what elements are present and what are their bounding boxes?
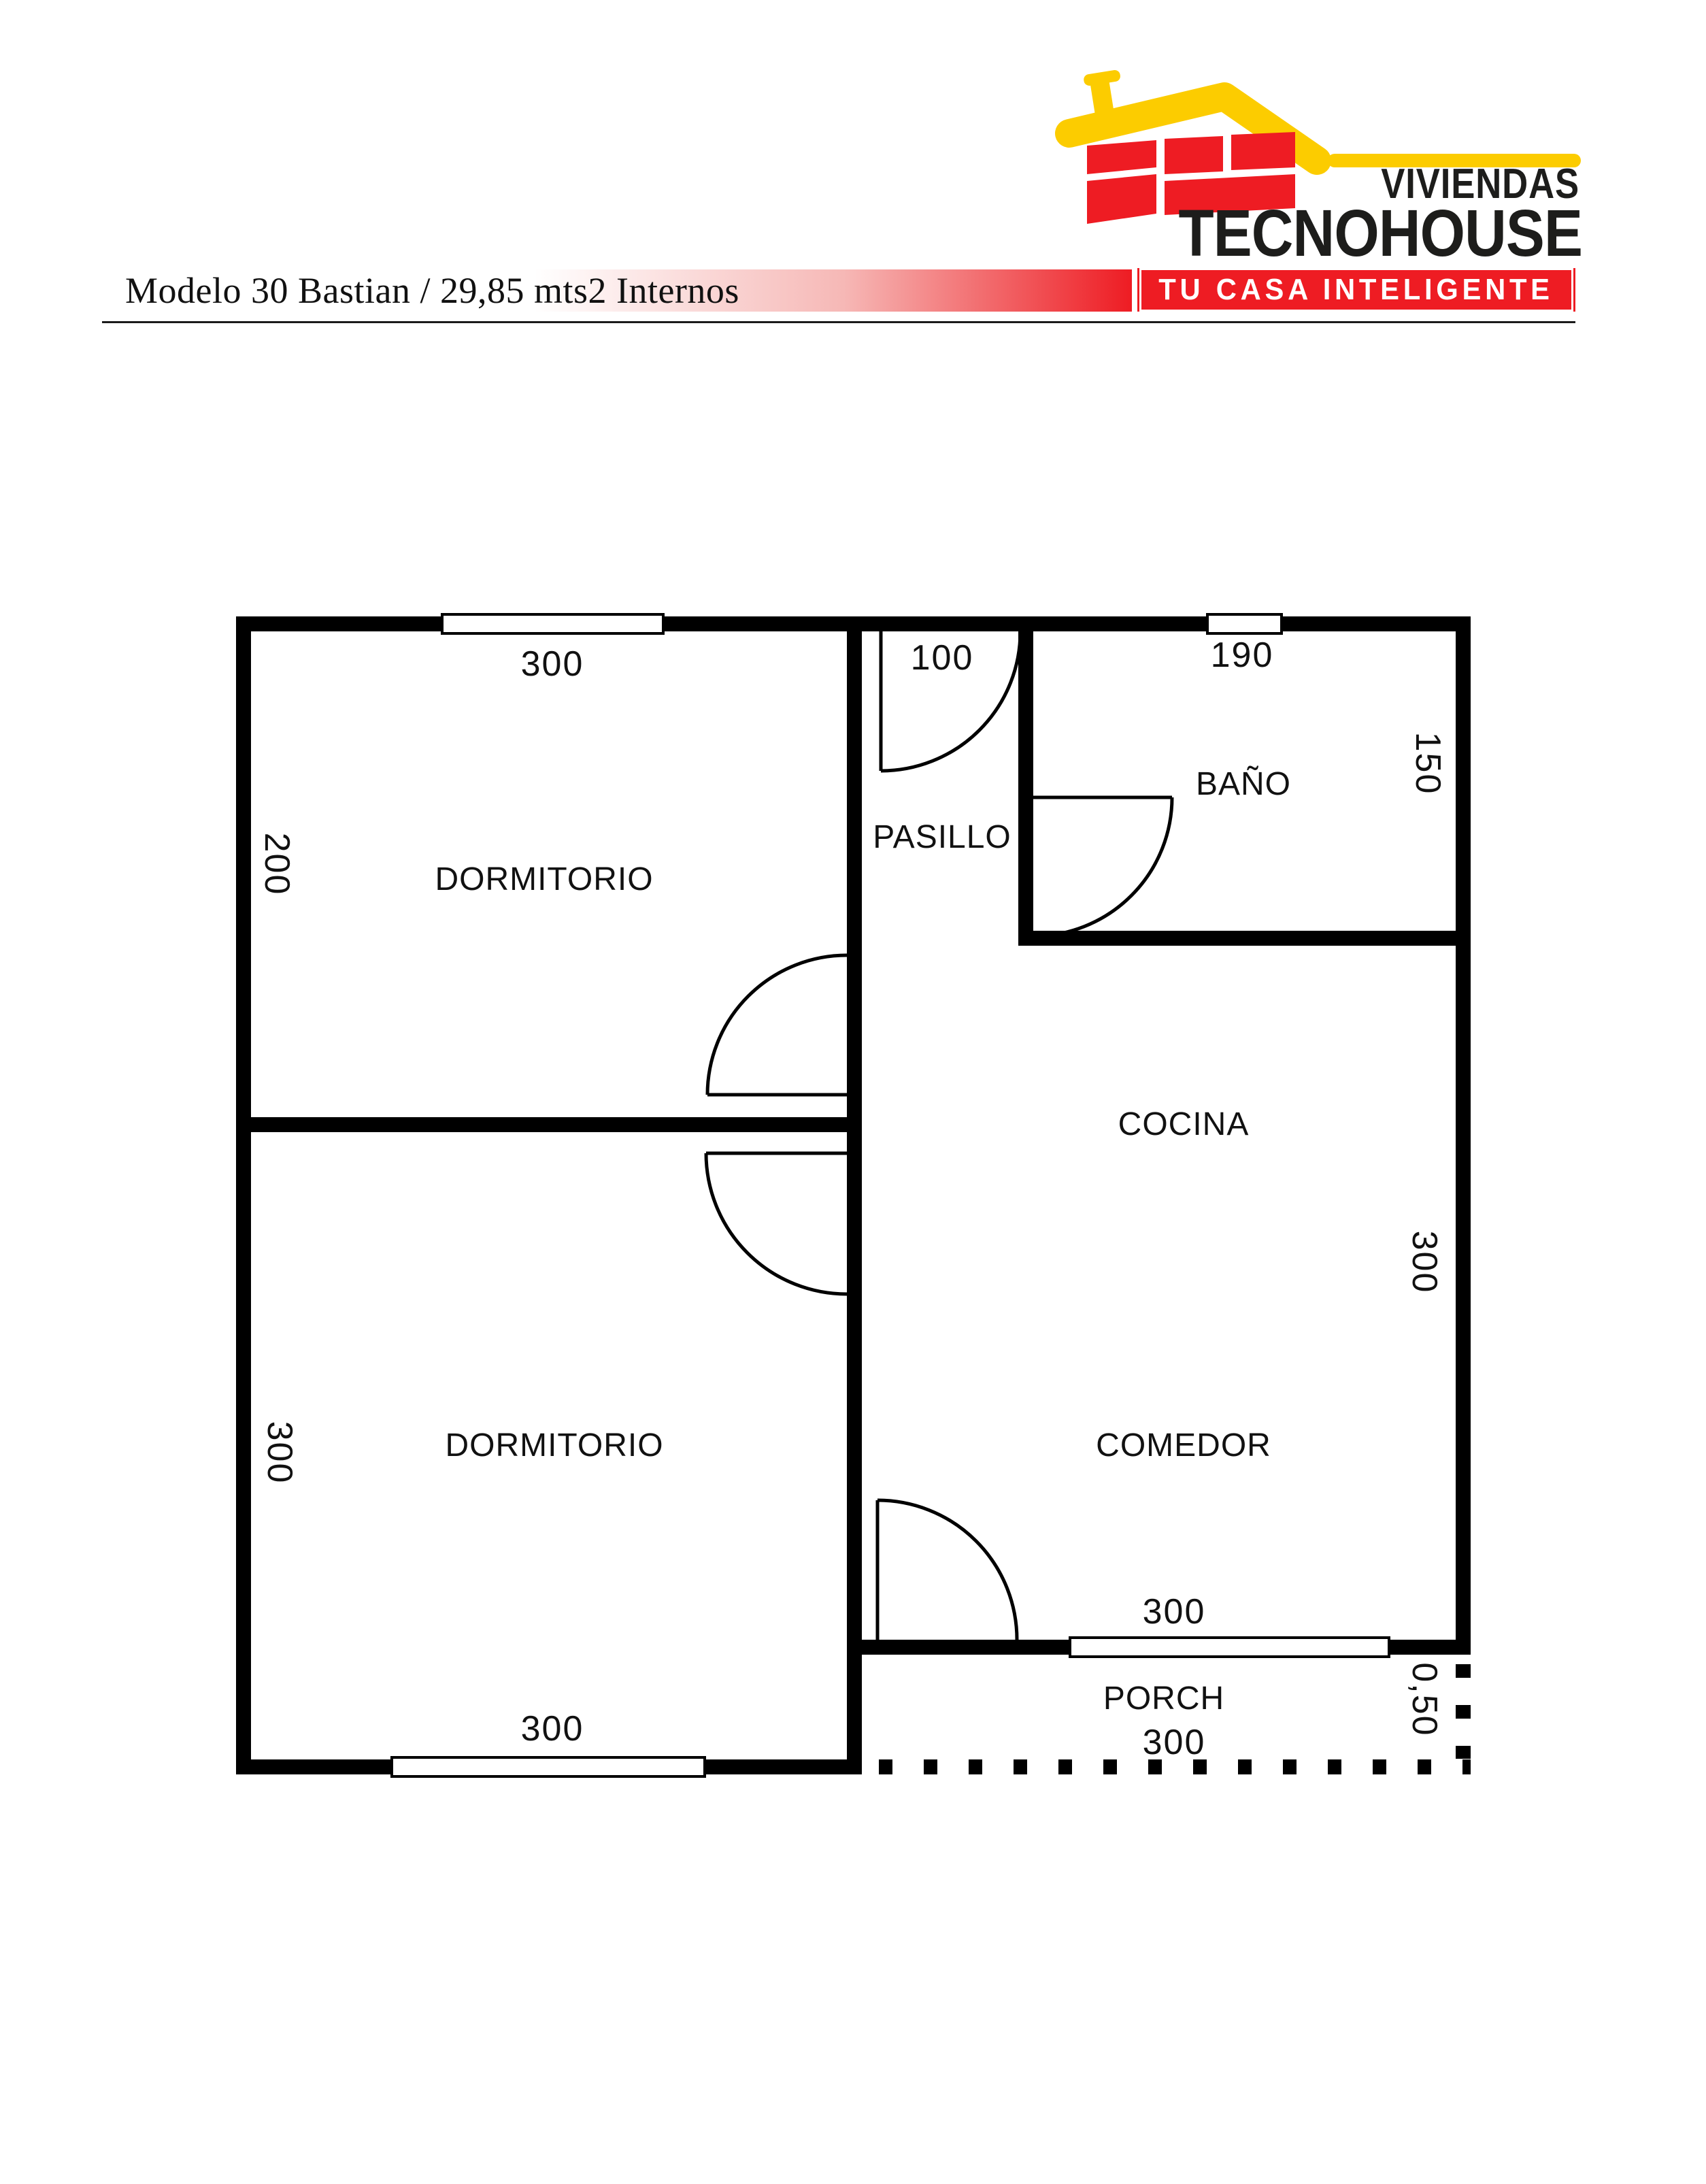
slogan-text: TU CASA INTELIGENTE [1159, 273, 1554, 307]
dim-dorm-top-width: 300 [521, 644, 584, 684]
dim-bano-width: 190 [1211, 635, 1274, 675]
slogan-box: TU CASA INTELIGENTE [1137, 268, 1575, 312]
bano-door-arc [1033, 797, 1172, 936]
dim-comedor-width: 300 [1143, 1592, 1206, 1632]
dorm-bottom-door-arc [706, 1153, 847, 1294]
comedor-door-arc [877, 1500, 1017, 1640]
wall-right [1456, 616, 1471, 1655]
dim-porch-width: 300 [1143, 1723, 1206, 1762]
label-dormitorio-top: DORMITORIO [435, 861, 653, 897]
wall-pasillo-bano [1018, 616, 1033, 946]
label-porch: PORCH [1103, 1681, 1224, 1717]
brand-tecnohouse: TECNOHOUSE [1177, 201, 1582, 265]
room-labels: DORMITORIO PASILLO BAÑO COCINA DORMITORI… [435, 765, 1291, 1717]
dorm-top-door-arc [707, 955, 847, 1095]
window-dormitorio-bottom [392, 1757, 705, 1776]
wall-left [236, 616, 251, 1774]
page-title: Modelo 30 Bastian / 29,85 mts2 Internos [102, 269, 739, 312]
wall-bano-bottom [1018, 931, 1471, 946]
dim-dorm-bottom-height: 300 [260, 1421, 299, 1485]
slogan-inner-border: TU CASA INTELIGENTE [1139, 268, 1573, 312]
floorplan-drawing: 300 200 100 190 150 300 300 300 300 300 … [0, 0, 1706, 2184]
window-bano [1207, 614, 1282, 633]
header-divider [102, 321, 1575, 323]
window-dormitorio-top [442, 614, 663, 633]
dim-bano-height: 150 [1408, 732, 1448, 795]
wall-spine [847, 616, 862, 1774]
label-cocina: COCINA [1118, 1106, 1250, 1142]
label-bano: BAÑO [1196, 765, 1291, 802]
dim-porch-depth: 0,50 [1405, 1662, 1444, 1736]
window-porch-door [1070, 1638, 1389, 1657]
label-comedor: COMEDOR [1096, 1427, 1271, 1463]
page: 300 200 100 190 150 300 300 300 300 300 … [0, 0, 1706, 2184]
dim-dorm-bottom-width: 300 [521, 1709, 584, 1749]
label-pasillo: PASILLO [873, 819, 1011, 855]
dim-dorm-top-height: 200 [257, 833, 297, 896]
dim-cocina-comedor-height: 300 [1405, 1231, 1444, 1294]
dim-pasillo-width: 100 [911, 638, 974, 678]
wall-mid-dorms [236, 1117, 862, 1132]
title-band: Modelo 30 Bastian / 29,85 mts2 Internos [102, 269, 1132, 312]
doors-group [706, 631, 1172, 1640]
label-dormitorio-bottom: DORMITORIO [445, 1427, 663, 1463]
